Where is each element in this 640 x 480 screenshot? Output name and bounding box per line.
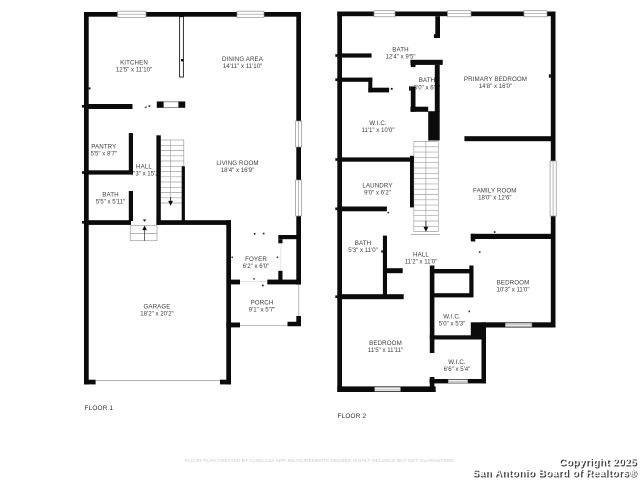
svg-text:14'8" x 16'0": 14'8" x 16'0" [479, 83, 512, 90]
svg-text:5'5" x 5'11": 5'5" x 5'11" [96, 198, 126, 205]
svg-text:11'1" x 10'0": 11'1" x 10'0" [362, 127, 395, 134]
svg-text:DINING AREA: DINING AREA [222, 56, 264, 63]
svg-text:BEDROOM: BEDROOM [369, 340, 402, 347]
svg-text:W.I.C.: W.I.C. [369, 120, 387, 127]
svg-text:BATH: BATH [419, 77, 435, 84]
svg-text:6'6" x 5'4": 6'6" x 5'4" [444, 366, 471, 373]
svg-text:BEDROOM: BEDROOM [497, 280, 530, 287]
svg-text:18'4" x 16'9": 18'4" x 16'9" [221, 167, 254, 174]
svg-text:Copyright 2025: Copyright 2025 [559, 457, 637, 468]
svg-text:5'0" x 5'3": 5'0" x 5'3" [439, 321, 466, 328]
svg-text:GARAGE: GARAGE [143, 304, 170, 311]
svg-text:9'1" x 5'7": 9'1" x 5'7" [249, 306, 276, 313]
svg-text:7'3" x 15'2": 7'3" x 15'2" [131, 171, 161, 178]
svg-text:9'0" x 6'2": 9'0" x 6'2" [364, 190, 391, 197]
svg-text:6'2" x 6'0": 6'2" x 6'0" [243, 263, 270, 270]
svg-text:5'3" x 11'0": 5'3" x 11'0" [348, 247, 378, 254]
svg-text:14'11" x 11'10": 14'11" x 11'10" [223, 63, 262, 70]
svg-text:12'4" x 9'5": 12'4" x 9'5" [385, 54, 415, 61]
svg-text:LAUNDRY: LAUNDRY [362, 183, 392, 190]
svg-text:18'2" x 20'2": 18'2" x 20'2" [140, 311, 173, 318]
svg-text:KITCHEN: KITCHEN [120, 60, 148, 67]
svg-text:W.I.C.: W.I.C. [443, 314, 461, 321]
svg-text:PANTRY: PANTRY [91, 143, 116, 150]
svg-text:FLOOR PLAN CREATED BY CUBICASA: FLOOR PLAN CREATED BY CUBICASA APP. MEAS… [185, 458, 455, 464]
svg-text:10'3" x 11'0": 10'3" x 11'0" [497, 287, 530, 294]
svg-text:HALL: HALL [413, 252, 429, 259]
svg-text:11'2" x 11'0": 11'2" x 11'0" [405, 259, 438, 266]
svg-text:FAMILY ROOM: FAMILY ROOM [473, 188, 517, 195]
svg-text:BATH: BATH [102, 191, 118, 198]
svg-text:PRIMARY BEDROOM: PRIMARY BEDROOM [464, 76, 527, 83]
svg-text:FOYER: FOYER [245, 256, 267, 263]
svg-text:5'5" x 8'7": 5'5" x 8'7" [90, 150, 117, 157]
svg-text:HALL: HALL [136, 164, 152, 171]
svg-text:San Antonio Board of Realtors®: San Antonio Board of Realtors® [472, 468, 637, 479]
svg-text:LIVING ROOM: LIVING ROOM [216, 160, 258, 167]
svg-text:18'0" x 12'6": 18'0" x 12'6" [478, 195, 511, 202]
svg-text:11'5" x 11'11": 11'5" x 11'11" [368, 347, 403, 354]
svg-text:BATH: BATH [392, 47, 408, 54]
svg-text:BATH: BATH [355, 240, 371, 247]
svg-text:FLOOR 2: FLOOR 2 [338, 413, 367, 420]
svg-text:W.I.C.: W.I.C. [448, 359, 466, 366]
svg-text:12'5" x 11'10": 12'5" x 11'10" [116, 67, 152, 74]
svg-text:PORCH: PORCH [251, 299, 274, 306]
svg-text:FLOOR 1: FLOOR 1 [85, 405, 114, 412]
